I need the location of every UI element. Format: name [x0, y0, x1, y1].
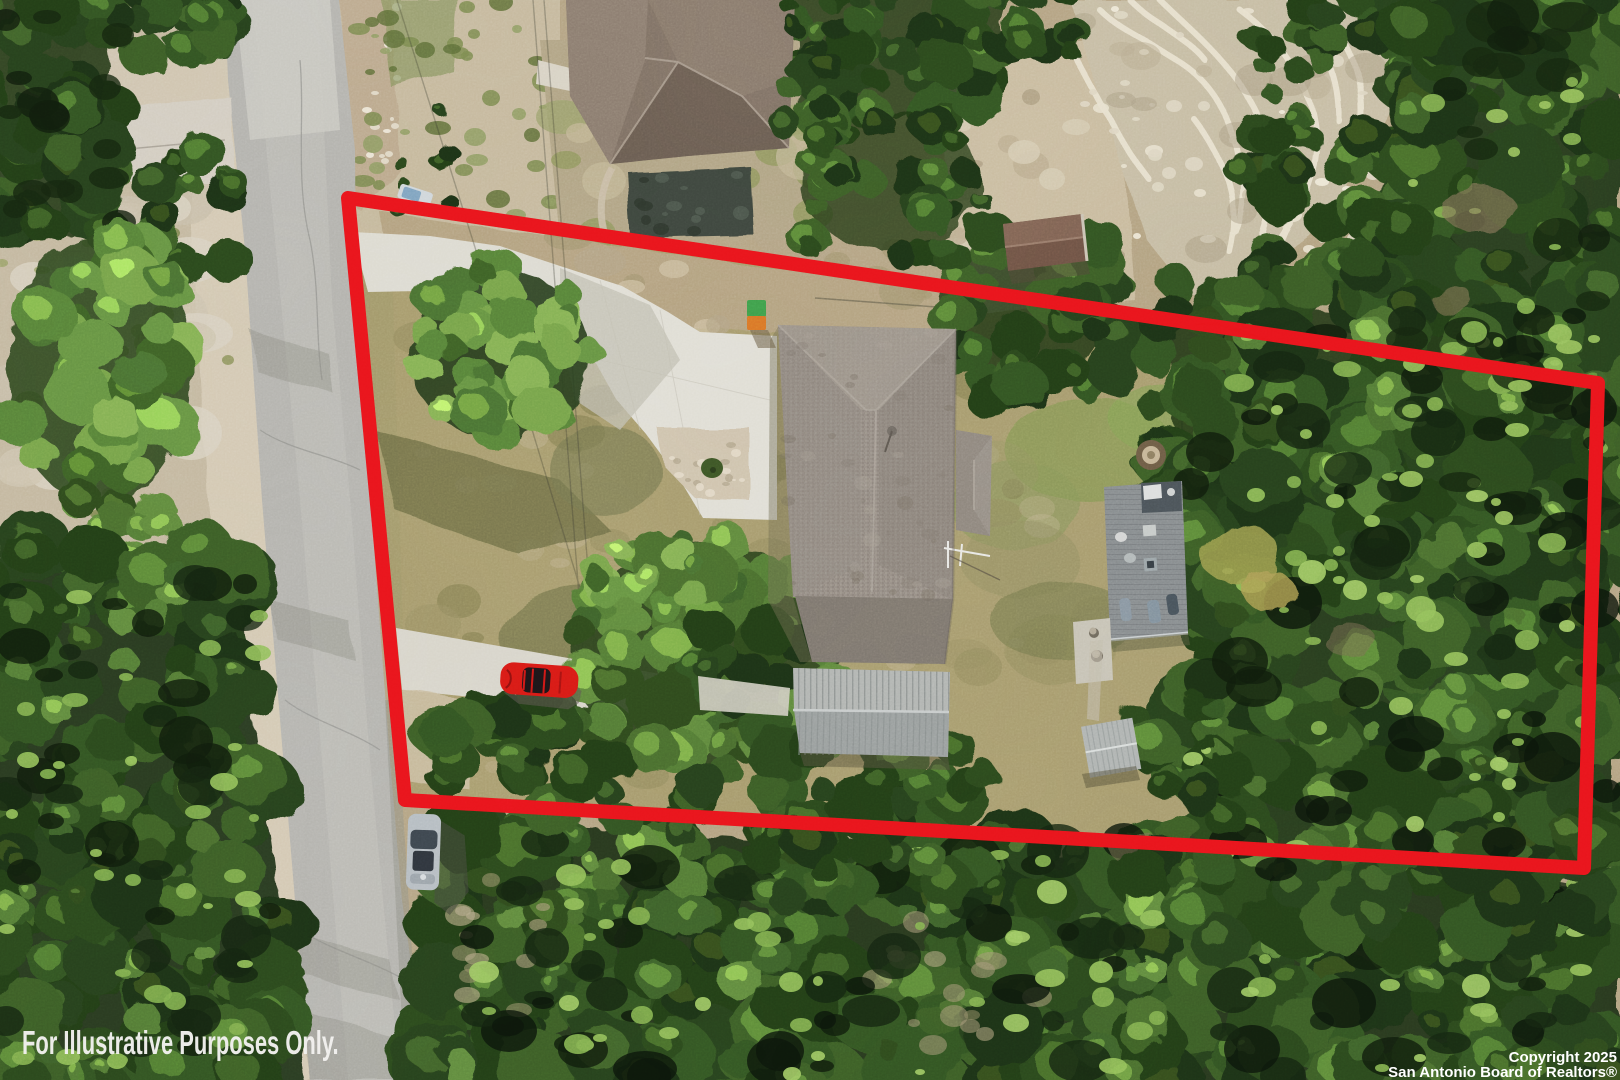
svg-text:San Antonio Board of Realtors®: San Antonio Board of Realtors® — [1388, 1064, 1617, 1080]
svg-text:For Illustrative Purposes Only: For Illustrative Purposes Only. — [22, 1025, 339, 1062]
